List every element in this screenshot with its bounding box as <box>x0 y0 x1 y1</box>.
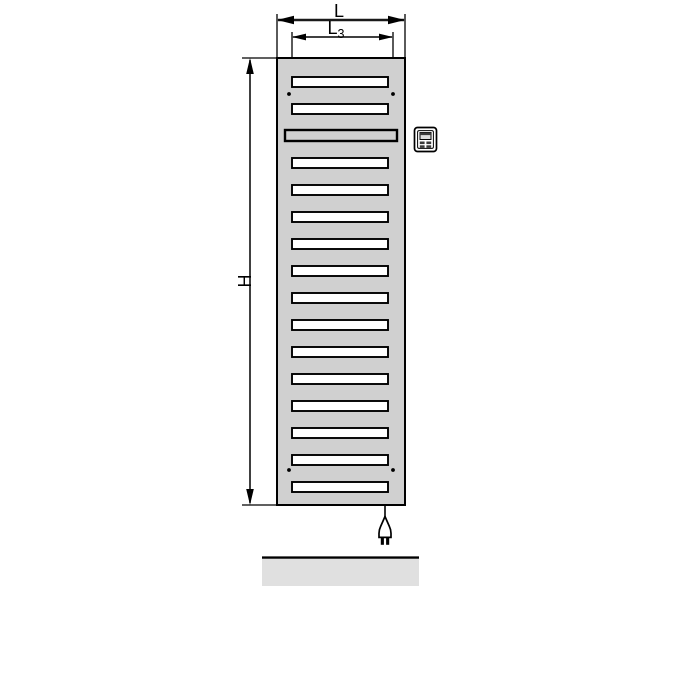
mount-dot <box>287 92 291 96</box>
arrowhead-right-icon <box>379 34 393 41</box>
radiator-slot <box>292 347 388 357</box>
plug-body <box>379 517 391 538</box>
arrowhead-left-icon <box>277 16 294 24</box>
radiator-slot <box>292 104 388 114</box>
radiator-slot <box>292 455 388 465</box>
radiator-slot <box>292 401 388 411</box>
control-unit-button <box>420 145 425 148</box>
control-unit-display-bar <box>420 133 431 136</box>
dimension-slot-width: L3 <box>292 18 393 57</box>
control-unit-button <box>420 142 425 145</box>
radiator-slot <box>292 374 388 384</box>
arrowhead-bottom-icon <box>246 489 254 505</box>
radiator-slot <box>292 239 388 249</box>
floor-surface <box>262 559 419 586</box>
label-height: H <box>235 275 255 288</box>
label-slot-width-base: L <box>328 18 338 38</box>
arrowhead-left-icon <box>292 34 306 41</box>
radiator-slot <box>292 428 388 438</box>
radiator-diagram-canvas: L L3 H <box>0 0 700 700</box>
control-unit-icon <box>415 128 437 152</box>
mount-dot <box>287 468 291 472</box>
control-unit-button <box>426 142 431 145</box>
radiator-slot <box>292 158 388 168</box>
radiator-slot <box>292 482 388 492</box>
radiator-slot <box>292 185 388 195</box>
mount-dot <box>391 468 395 472</box>
control-unit-button <box>426 145 431 148</box>
plug-prong-right <box>386 537 389 544</box>
plug-prong-left <box>381 537 384 544</box>
power-plug-icon <box>379 506 391 545</box>
radiator-slot <box>292 293 388 303</box>
dimension-height: H <box>235 58 276 505</box>
radiator-slot <box>292 320 388 330</box>
radiator-wide-slot <box>285 130 397 141</box>
radiator-slot <box>292 77 388 87</box>
radiator-diagram: L L3 H <box>0 0 700 700</box>
label-slot-width-subscript: 3 <box>338 27 345 41</box>
arrowhead-right-icon <box>388 16 405 24</box>
mount-dot <box>391 92 395 96</box>
radiator-slot <box>292 266 388 276</box>
radiator-slot <box>292 212 388 222</box>
label-slot-width: L3 <box>328 18 345 41</box>
radiator-body <box>277 58 405 505</box>
arrowhead-top-icon <box>246 58 254 74</box>
floor-baseboard <box>262 558 419 586</box>
